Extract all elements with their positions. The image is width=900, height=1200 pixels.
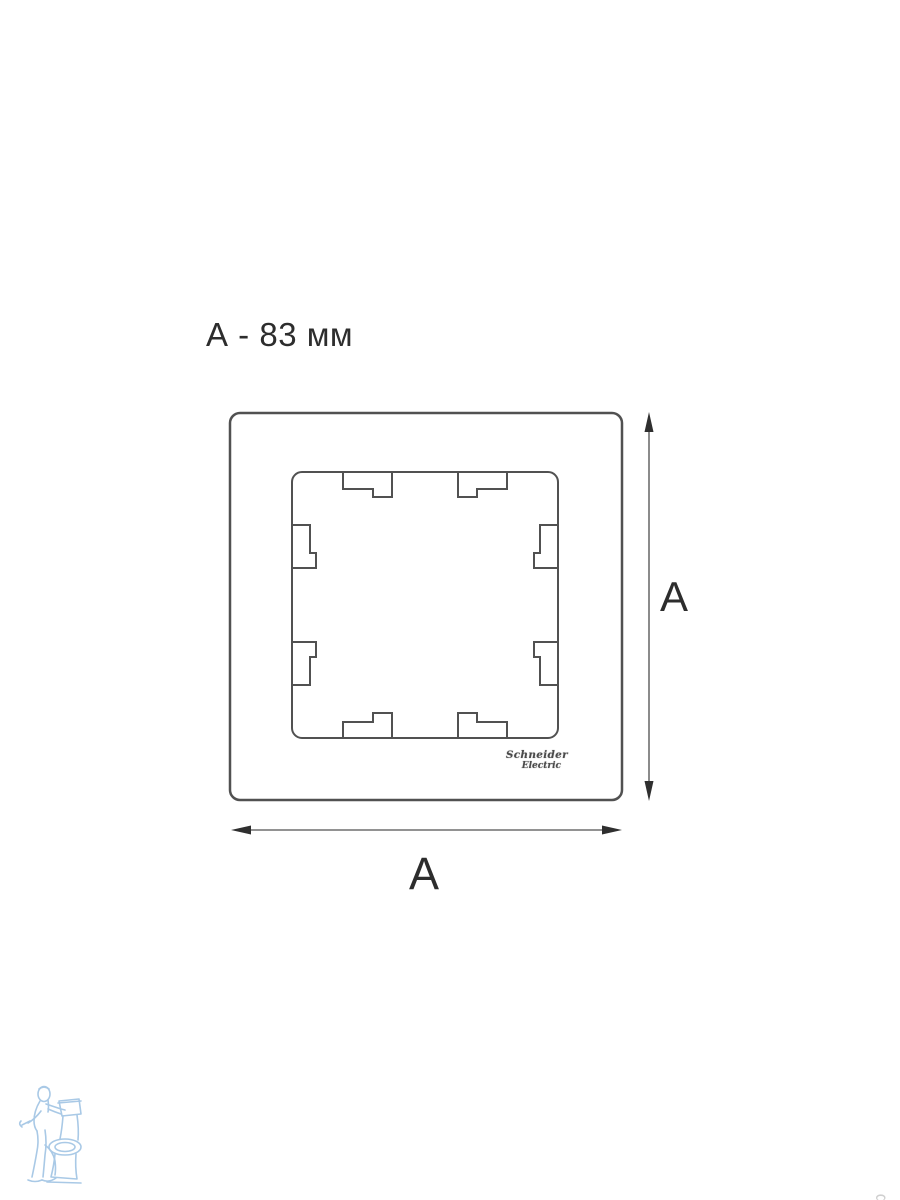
product-dimension-page: А - 83 мм A A bbox=[0, 0, 900, 1200]
brand-logo-line2: Electric bbox=[494, 761, 561, 772]
horizontal-dimension: A bbox=[231, 826, 622, 900]
brand-logo: Schneider Electric bbox=[494, 750, 568, 772]
brand-logo-line1: Schneider bbox=[494, 750, 568, 761]
plumber-with-toilet-icon bbox=[15, 1085, 100, 1190]
arrowhead-down-icon bbox=[645, 781, 654, 801]
arrowhead-up-icon bbox=[645, 412, 654, 432]
frame-dimension-diagram: A A bbox=[0, 0, 900, 1200]
frame-inner-opening bbox=[292, 472, 558, 738]
arrowhead-right-icon bbox=[602, 826, 622, 835]
site-watermark: афоня.рф bbox=[870, 1192, 890, 1200]
horizontal-dimension-label: A bbox=[409, 848, 439, 899]
arrowhead-left-icon bbox=[231, 826, 251, 835]
vertical-dimension: A bbox=[645, 412, 689, 801]
vertical-dimension-label: A bbox=[660, 573, 688, 620]
